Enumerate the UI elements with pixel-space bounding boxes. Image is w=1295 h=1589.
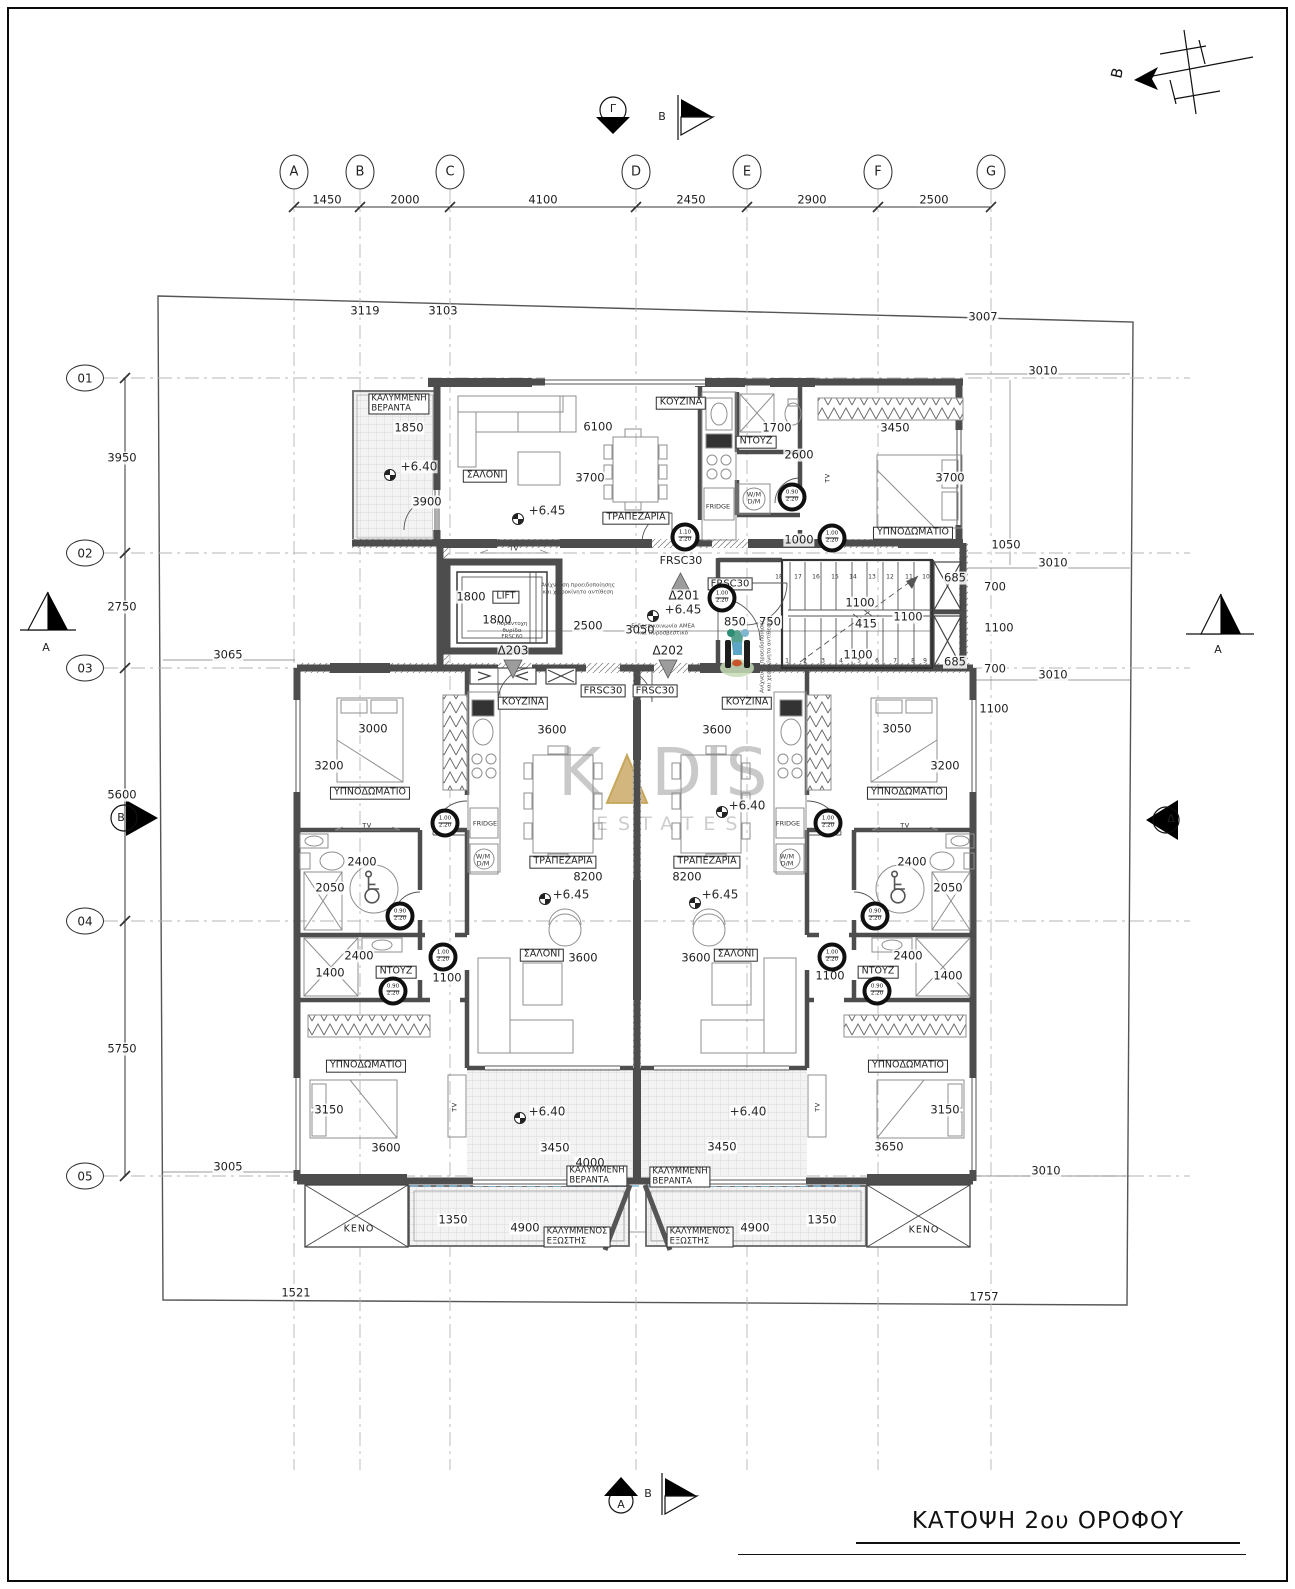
- dim-3600: 3600: [680, 952, 711, 965]
- title-underline-2: [738, 1554, 1246, 1555]
- lvl-+6.40: +6.40: [401, 460, 438, 473]
- dim-1700: 1700: [761, 422, 792, 435]
- dim-2750: 2750: [106, 601, 137, 614]
- room-υπνοδωματιο: ΥΠΝΟΔΩΜΑΤΙΟ: [873, 527, 953, 540]
- room-σαλονι: ΣΑΛΟΝΙ: [463, 470, 507, 483]
- dim-3700: 3700: [934, 472, 965, 485]
- lvl-+6.45: +6.45: [665, 603, 702, 616]
- dim-1850: 1850: [393, 422, 424, 435]
- door-height: 2.20: [826, 957, 838, 964]
- grid-column-g: G: [977, 155, 1006, 190]
- dim-3450: 3450: [539, 1142, 570, 1155]
- stair-tread-number-17: 17: [794, 574, 802, 581]
- door-δ202: Δ202: [652, 644, 683, 657]
- dim-3010: 3010: [1030, 1165, 1061, 1178]
- dim-3000: 3000: [357, 723, 388, 736]
- dim-1521: 1521: [280, 1287, 311, 1300]
- room-υπνοδωματιο: ΥΠΝΟΔΩΜΑΤΙΟ: [868, 1060, 948, 1073]
- tv-tv: TV: [509, 545, 518, 552]
- grid-row-02: 02: [66, 540, 104, 567]
- dim-3650: 3650: [873, 1141, 904, 1154]
- dim-1100: 1100: [983, 622, 1014, 635]
- title-underline-1: [856, 1542, 1240, 1544]
- stair-tread-number-18: 18: [775, 574, 783, 581]
- stair-tread-number-2: 2: [803, 658, 807, 665]
- room2-καλυμμενη-βεραντα: ΚΑΛΥΜΜΕΝΗ ΒΕΡΑΝΤΑ: [649, 1166, 710, 1187]
- grid-column-d: D: [622, 155, 651, 190]
- door-size-circle-1.00: 1.002.20: [429, 943, 458, 972]
- room2-καλυμμενη-βεραντα: ΚΑΛΥΜΜΕΝΗ ΒΕΡΑΝΤΑ: [566, 1165, 627, 1186]
- door-size-circle-0.90: 0.902.20: [778, 483, 807, 512]
- stair-tread-number-13: 13: [868, 574, 876, 581]
- dim-3050: 3050: [881, 723, 912, 736]
- door-height: 2.20: [439, 823, 451, 830]
- dim-700: 700: [983, 581, 1007, 594]
- dim-3065: 3065: [212, 649, 243, 662]
- door-height: 2.20: [716, 598, 728, 605]
- room-υπνοδωματιο: ΥΠΝΟΔΩΜΑΤΙΟ: [326, 1060, 406, 1073]
- room-τραπεζαρια: ΤΡΑΠΕΖΑΡΙΑ: [602, 512, 669, 525]
- room-κουζινα: ΚΟΥΖΙΝΑ: [498, 697, 548, 710]
- grid-column-c: C: [436, 155, 465, 190]
- stair-tread-number-16: 16: [812, 574, 820, 581]
- dim-2050: 2050: [932, 882, 963, 895]
- dim-1100: 1100: [814, 970, 845, 983]
- door-height: 2.20: [679, 537, 691, 544]
- frscb-frsc30: FRSC30: [633, 684, 678, 697]
- room-υπνοδωματιο: ΥΠΝΟΔΩΜΑΤΙΟ: [867, 787, 947, 800]
- lvl-+6.45: +6.45: [702, 888, 739, 901]
- door-height: 2.20: [871, 991, 883, 998]
- door-size-circle-0.90: 0.902.20: [861, 902, 890, 931]
- dim-3150: 3150: [313, 1104, 344, 1117]
- door-height: 2.20: [869, 916, 881, 923]
- dim-3103: 3103: [427, 305, 458, 318]
- dim-1050: 1050: [990, 539, 1021, 552]
- room-ντουζ: ΝΤΟΥΖ: [736, 436, 777, 449]
- dim-3600: 3600: [536, 724, 567, 737]
- dim-1757: 1757: [968, 1291, 999, 1304]
- door-size-circle-0.90: 0.902.20: [386, 902, 415, 931]
- dim-3007: 3007: [967, 311, 998, 324]
- dim-685: 685: [943, 572, 967, 585]
- grid-column-a: A: [280, 155, 309, 190]
- lvl-+6.45: +6.45: [553, 888, 590, 901]
- dim-3450: 3450: [879, 422, 910, 435]
- tny-ανίχνευση-προειδοποίησης-και: Ανίχνευση προειδοποίησης και χειροκίνητο…: [541, 582, 615, 595]
- dim-1400: 1400: [932, 970, 963, 983]
- dim-2500: 2500: [918, 194, 949, 207]
- dim-3010: 3010: [1027, 365, 1058, 378]
- sm-w-m-d-m: W/M D/M: [747, 492, 761, 507]
- dim-2500: 2500: [572, 620, 603, 633]
- dim-3600: 3600: [701, 724, 732, 737]
- door-height: 2.20: [394, 916, 406, 923]
- dim-4900: 4900: [739, 1222, 770, 1235]
- dim-685: 685: [943, 656, 967, 669]
- lvl-+6.45: +6.45: [529, 504, 566, 517]
- lvl-+6.40: +6.40: [729, 799, 766, 812]
- stair-tread-number-3: 3: [821, 658, 825, 665]
- door-size-circle-1.00: 1.002.20: [818, 524, 847, 553]
- mk-a: A: [617, 1499, 625, 1511]
- frsc-frsc30: FRSC30: [660, 555, 703, 567]
- dim-4100: 4100: [527, 194, 558, 207]
- dim-3010: 3010: [1037, 669, 1068, 682]
- door-δ201: Δ201: [668, 589, 699, 602]
- dim-3900: 3900: [411, 496, 442, 509]
- dim-850: 850: [723, 616, 747, 629]
- stair-tread-number-8: 8: [911, 658, 915, 665]
- dim-4900: 4900: [509, 1222, 540, 1235]
- dim-2400: 2400: [343, 950, 374, 963]
- dim-3119: 3119: [349, 305, 380, 318]
- dim-2600: 2600: [783, 449, 814, 462]
- dim-2450: 2450: [675, 194, 706, 207]
- stair-tread-number-1: 1: [785, 658, 789, 665]
- tny-ανίχνευση-προειδοποίησης-και: Ανίχνευση προειδοποίησης και χειροκίνητο…: [759, 619, 772, 693]
- dim-3005: 3005: [212, 1161, 243, 1174]
- stair-tread-number-7: 7: [893, 658, 897, 665]
- dim-5750: 5750: [106, 1043, 137, 1056]
- floor-plan-sheet: K DIS ESTATES: [0, 0, 1295, 1589]
- tv-tv: TV: [362, 822, 371, 829]
- dim-1100: 1100: [844, 597, 875, 610]
- dim-1100: 1100: [978, 703, 1009, 716]
- grid-column-f: F: [864, 155, 893, 190]
- dim-8200: 8200: [572, 871, 603, 884]
- door-height: 2.20: [437, 957, 449, 964]
- mk-δ: Δ: [1167, 813, 1175, 825]
- grid-row-04: 04: [66, 908, 104, 935]
- mk-b: B: [644, 1488, 652, 1500]
- dim-1100: 1100: [892, 611, 923, 624]
- lvl-+6.40: +6.40: [730, 1105, 767, 1118]
- door-size-circle-1.00: 1.002.20: [814, 809, 843, 838]
- room-κουζινα: ΚΟΥΖΙΝΑ: [722, 697, 772, 710]
- room2-καλυμμενος-εξωστης: ΚΑΛΥΜΜΕΝΟΣ ΕΞΩΣΤΗΣ: [667, 1226, 734, 1247]
- dim-6100: 6100: [582, 421, 613, 434]
- grid-column-e: E: [733, 155, 762, 190]
- dim-3600: 3600: [370, 1142, 401, 1155]
- dim-3450: 3450: [706, 1141, 737, 1154]
- door-size-circle-0.90: 0.902.20: [863, 977, 892, 1006]
- sm-w-m-d-m: W/M D/M: [780, 854, 794, 869]
- room2-καλυμμενη-βεραντα: ΚΑΛΥΜΜΕΝΗ ΒΕΡΑΝΤΑ: [368, 393, 429, 414]
- door-height: 2.20: [387, 991, 399, 998]
- mk-a: A: [42, 642, 50, 654]
- tv-tv: TV: [814, 1102, 821, 1111]
- dim-3950: 3950: [106, 452, 137, 465]
- room2-καλυμμενος-εξωστης: ΚΑΛΥΜΜΕΝΟΣ ΕΞΩΣΤΗΣ: [544, 1226, 611, 1247]
- stair-tread-number-5: 5: [857, 658, 861, 665]
- stair-tread-number-12: 12: [886, 574, 894, 581]
- room-σαλονι: ΣΑΛΟΝΙ: [714, 949, 758, 962]
- room-κουζινα: ΚΟΥΖΙΝΑ: [656, 397, 706, 410]
- door-height: 2.20: [826, 538, 838, 545]
- grid-row-05: 05: [66, 1163, 104, 1190]
- grid-column-b: B: [346, 155, 375, 190]
- dim-3200: 3200: [313, 760, 344, 773]
- plain-keno: KENO: [909, 1226, 940, 1237]
- dim-3700: 3700: [574, 472, 605, 485]
- door-size-circle-0.90: 0.902.20: [379, 977, 408, 1006]
- labels-layer: 1450200041002450290025003119310330073950…: [0, 0, 1295, 1589]
- stair-tread-number-6: 6: [875, 658, 879, 665]
- sm-fridge: FRIDGE: [473, 820, 497, 827]
- drawing-title: ΚΑΤΟΨΗ 2ου ΟΡΟΦΟΥ: [856, 1508, 1240, 1534]
- dim-2400: 2400: [346, 856, 377, 869]
- dim-1000: 1000: [783, 534, 814, 547]
- plain-keno: KENO: [344, 1225, 375, 1236]
- dim-1400: 1400: [314, 967, 345, 980]
- dim-3200: 3200: [929, 760, 960, 773]
- dim-2400: 2400: [896, 856, 927, 869]
- sm-w-m-d-m: W/M D/M: [476, 854, 490, 869]
- room-υπνοδωματιο: ΥΠΝΟΔΩΜΑΤΙΟ: [330, 787, 410, 800]
- stair-tread-number-9: 9: [923, 658, 927, 665]
- dim-8200: 8200: [671, 871, 702, 884]
- dim-2400: 2400: [892, 950, 923, 963]
- dim-2000: 2000: [389, 194, 420, 207]
- frscb-frsc30: FRSC30: [581, 684, 626, 697]
- dim-2050: 2050: [314, 882, 345, 895]
- mk-b: B: [658, 111, 666, 123]
- stair-tread-number-10: 10: [922, 574, 930, 581]
- mk-b: B: [117, 812, 125, 824]
- dim-415: 415: [854, 618, 878, 631]
- stair-tread-number-11: 11: [905, 574, 913, 581]
- room-τραπεζαρια: ΤΡΑΠΕΖΑΡΙΑ: [529, 856, 596, 869]
- room-lift: LIFT: [492, 591, 519, 604]
- dim-3150: 3150: [929, 1104, 960, 1117]
- tv-tv: TV: [900, 822, 909, 829]
- dim-5600: 5600: [106, 789, 137, 802]
- door-size-circle-1.00: 1.002.20: [708, 584, 737, 613]
- stair-tread-number-14: 14: [849, 574, 857, 581]
- door-height: 2.20: [786, 497, 798, 504]
- dim-3010: 3010: [1037, 557, 1068, 570]
- sm-fridge: FRIDGE: [706, 503, 730, 510]
- door-size-circle-1.00: 1.002.20: [818, 943, 847, 972]
- door-height: 2.20: [822, 823, 834, 830]
- lvl-+6.40: +6.40: [529, 1105, 566, 1118]
- tv-tv: TV: [451, 1102, 458, 1111]
- tv-tv: TV: [824, 473, 831, 482]
- dim-1350: 1350: [806, 1214, 837, 1227]
- door-size-circle-1.10: 1.102.20: [671, 523, 700, 552]
- door-size-circle-1.00: 1.002.20: [431, 809, 460, 838]
- mk-a: A: [1214, 644, 1222, 656]
- dim-1800: 1800: [455, 591, 486, 604]
- room-τραπεζαρια: ΤΡΑΠΕΖΑΡΙΑ: [673, 856, 740, 869]
- tny-ενδοεπικοινωνία-αμεα-και-πυρ: Ενδοεπικοινωνία ΑΜΕΑ και Πυροσβεστικό: [631, 623, 695, 636]
- stair-tread-number-15: 15: [831, 574, 839, 581]
- dim-2900: 2900: [796, 194, 827, 207]
- dim-1350: 1350: [437, 1214, 468, 1227]
- door-δ203: Δ203: [497, 644, 528, 657]
- dim-1100: 1100: [431, 972, 462, 985]
- room-σαλονι: ΣΑΛΟΝΙ: [520, 949, 564, 962]
- stair-tread-number-4: 4: [839, 658, 843, 665]
- dim-1450: 1450: [311, 194, 342, 207]
- mk-γ: Γ: [610, 103, 616, 115]
- grid-row-03: 03: [66, 655, 104, 682]
- grid-row-01: 01: [66, 365, 104, 392]
- tny-πυράντοχη-θυρίδα-frsc60: Πυράντοχη θυρίδα FRSC60: [497, 621, 528, 641]
- dim-700: 700: [983, 663, 1007, 676]
- sm-fridge: FRIDGE: [776, 820, 800, 827]
- dim-3600: 3600: [567, 952, 598, 965]
